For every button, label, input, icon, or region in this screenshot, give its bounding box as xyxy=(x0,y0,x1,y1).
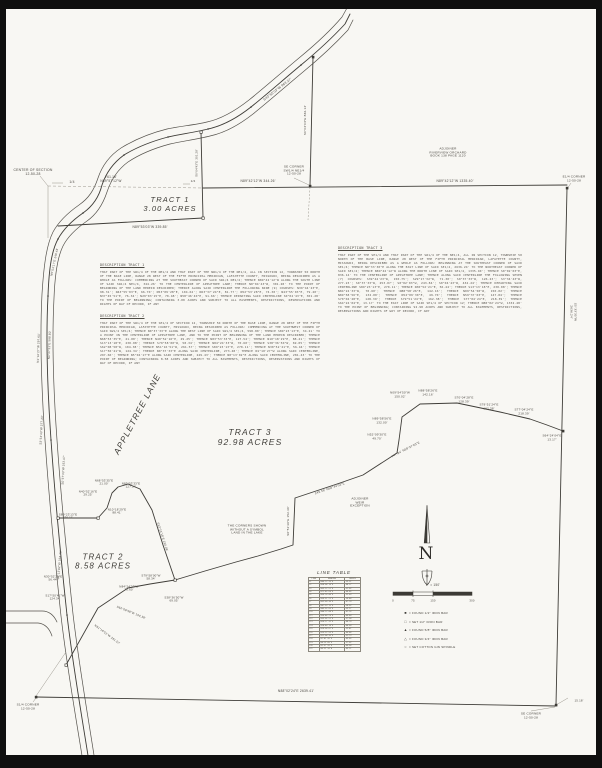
zigzag-b10-label: S77°04'24"E 218.39' xyxy=(514,408,533,415)
zigzag-b9-label: S79°51'24"E 162.38' xyxy=(479,403,498,410)
quarter-tick-left-label: 1/4 xyxy=(69,180,74,184)
adjoiner-weir-label: ADJOINER WEIR EXCEPTION xyxy=(350,498,370,509)
scale-ratio-label: 1" = 150' xyxy=(426,584,440,588)
street-name-label: APPLETREE LANE xyxy=(111,372,162,456)
sw-ne-south-line-label: N89°42'12"W 344.26' xyxy=(240,180,275,184)
tract2-b13-label: N51°16'51"W 261.57' xyxy=(94,624,121,646)
scale-tick-0: 0 xyxy=(392,599,394,602)
tract2-b5-label: S89°23'13"E 270.11' xyxy=(59,514,77,521)
tract2-b1-label: N68°53'35"E 21.00' xyxy=(95,480,114,487)
tract3-label: TRACT 3 92.98 ACRES xyxy=(218,427,283,447)
road-offset-label: 761.18' N89°57'12"W xyxy=(100,176,121,184)
tract1-label: TRACT 1 3.00 ACRES xyxy=(143,196,196,214)
tract1-south-line-label: N89°53'03"W 339.85' xyxy=(132,226,167,230)
tract2-b4-label: N10°18'29"E 88.41' xyxy=(108,509,127,516)
zigzag-b6-label: S0°51'39"E 152.30' xyxy=(287,506,291,535)
north-line-label: N89°42'12"W 1335.40' xyxy=(436,180,473,184)
zigzag-b11-label: S64°24'04"E 13.17' xyxy=(542,434,561,441)
south-line-label: N88°02'24"E 2639.41' xyxy=(278,690,314,694)
road-b5-label: S0°37'33"W 253.07' xyxy=(62,455,67,484)
tract2-b8-label: S17°50'41"W 124.34' xyxy=(45,595,64,602)
road-bearing-top-label: S43°55'03"W 963.27' xyxy=(263,78,293,103)
quarter-tick-mid-label: 1/4 xyxy=(191,180,196,184)
scale-tick-150: 150 xyxy=(430,599,435,602)
tract2-b2-label: N83°53'33"E 127.54' xyxy=(122,483,141,490)
scale-tick-75: 75 xyxy=(411,599,415,602)
north-letter: N xyxy=(418,544,433,564)
zigzag-b4-label: 147.84' N59°37'03"E xyxy=(391,441,421,458)
zigzag-b7-label: N88°58'26"E 142.16' xyxy=(418,389,437,396)
tract2-label: TRACT 2 8.58 ACRES xyxy=(75,553,131,572)
adjoiner-orchard-label: ADJOINER RIVERVIEW ORCHARD BOOK 138 PAGE… xyxy=(429,148,466,159)
tract2-b6-label: S13°13'18"E 230.08' xyxy=(156,522,169,552)
road-b6-label: S3°34'43"W 277.23' xyxy=(40,415,45,444)
scale-tick-300: 300 xyxy=(469,599,474,602)
zigzag-b3-label: N52°09'30"E 49.70' xyxy=(367,433,386,440)
road-b3-label: N5°04'17"E 249.43' xyxy=(50,248,59,277)
s4-corner-label: S1/4 CORNER 12-50-28 xyxy=(17,703,40,710)
tract2-b11-label: S38°36'50"W 69.05' xyxy=(164,597,183,604)
zigzag-b1-label: N09°54'50"W 150.02' xyxy=(390,391,410,398)
se-corner-label: SE CORNER 12-50-28 xyxy=(521,712,541,719)
plat-sheet: CENTER OF SECTION 12-50-281/4761.18' N89… xyxy=(0,0,602,768)
tract2-b10-label: N84°24'33"W 70.60' xyxy=(119,586,138,593)
labels-layer: CENTER OF SECTION 12-50-281/4761.18' N89… xyxy=(0,0,602,768)
zigzag-b2-label: N89°58'56"E 132.00' xyxy=(372,417,391,424)
swne-east-line-label: S0°02'03"E 836.14' xyxy=(304,105,308,135)
east-line-label: S0°33'30"W 2636.24' xyxy=(569,298,576,327)
tie-distance-label: 15.18' xyxy=(575,699,584,702)
tract2-b9-label: S79°58'00"W 58.34' xyxy=(141,575,160,582)
tract2-b3-label: N40°52'16"E 29.25' xyxy=(79,491,98,498)
tract1-east-line-label: S0°04'43"E 301.28' xyxy=(195,149,198,177)
road-b1-label: N0°37'33"E 598.80' xyxy=(48,331,52,360)
zigzag-b5-label: 249.56' N68°44'03"E xyxy=(315,482,346,496)
se-corner-swne-label: SE CORNER SW1/4 NE1/4 12-50-28 xyxy=(284,166,305,177)
center-of-section-label: CENTER OF SECTION 12-50-28 xyxy=(13,168,52,176)
tract2-b12-label: S62°08'58"W 104.38' xyxy=(116,606,146,621)
e4-corner-label: E1/4 CORNER 12-50-28 xyxy=(563,175,586,182)
lake-note-label: THE CORNERS SHOWN WITHOUT A SYMBOL LAND … xyxy=(228,525,267,536)
road-b2-label: N1°10'27"W 297.60' xyxy=(37,333,41,362)
zigzag-b8-label: S70°04'28"E 128.39' xyxy=(454,396,473,403)
